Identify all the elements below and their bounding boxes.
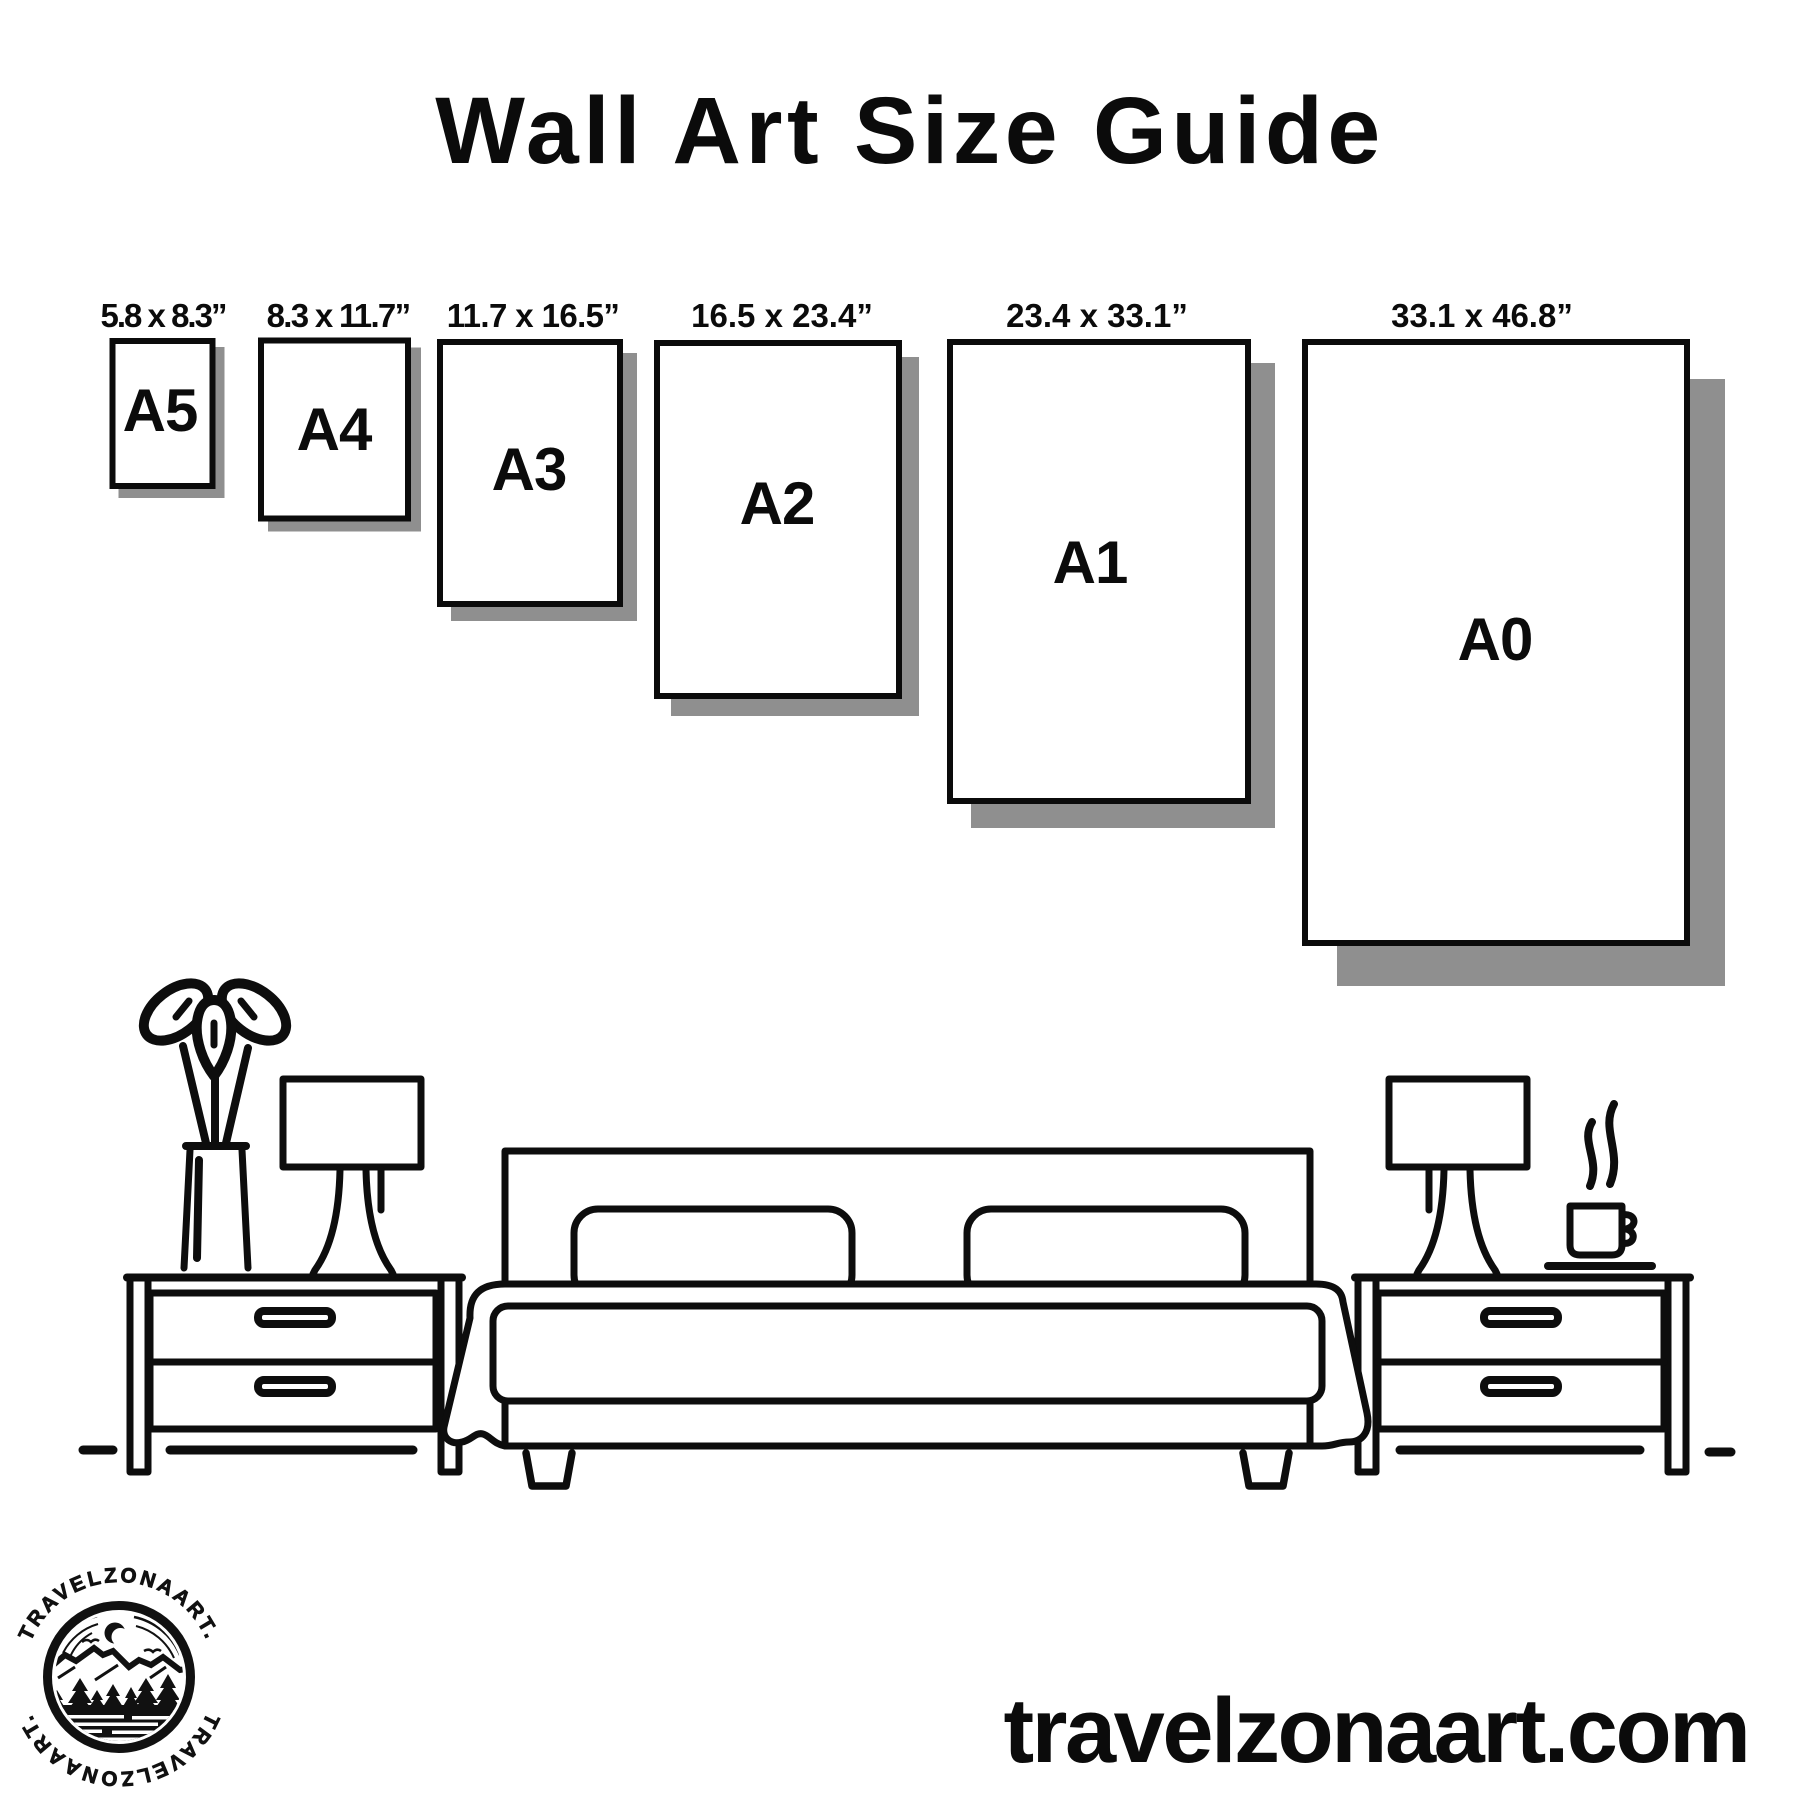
svg-text:travelzonaart.com: travelzonaart.com	[1004, 1680, 1749, 1782]
svg-text:23.4 x 33.1”: 23.4 x 33.1”	[1006, 297, 1188, 334]
svg-text:A2: A2	[740, 470, 815, 537]
svg-text:16.5 x 23.4”: 16.5 x 23.4”	[691, 297, 873, 334]
svg-text:A3: A3	[492, 436, 567, 503]
svg-text:A5: A5	[123, 377, 198, 444]
svg-text:Wall Art Size Guide: Wall Art Size Guide	[435, 78, 1384, 184]
svg-text:A1: A1	[1053, 529, 1128, 596]
svg-text:5.8 x 8.3”: 5.8 x 8.3”	[101, 297, 226, 334]
svg-text:8.3 x 11.7”: 8.3 x 11.7”	[267, 297, 410, 334]
svg-text:11.7 x 16.5”: 11.7 x 16.5”	[447, 297, 620, 334]
svg-text:33.1 x 46.8”: 33.1 x 46.8”	[1391, 297, 1573, 334]
svg-text:A0: A0	[1458, 606, 1533, 673]
svg-text:A4: A4	[297, 396, 373, 463]
